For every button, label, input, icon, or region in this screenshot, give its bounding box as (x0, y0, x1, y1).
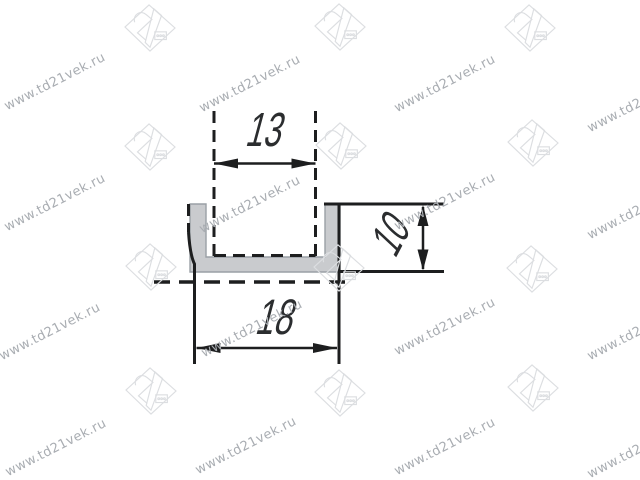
technical-drawing-screenshot: 13 18 10 www.td21vek.ru www.td21vek.ru w… (0, 0, 640, 480)
dimension-label-height: 10 (366, 202, 417, 264)
dimension-label-outer-width: 18 (252, 292, 302, 342)
dimension-labels: 13 18 10 (0, 0, 640, 480)
dimension-label-inner-width: 13 (242, 107, 290, 155)
